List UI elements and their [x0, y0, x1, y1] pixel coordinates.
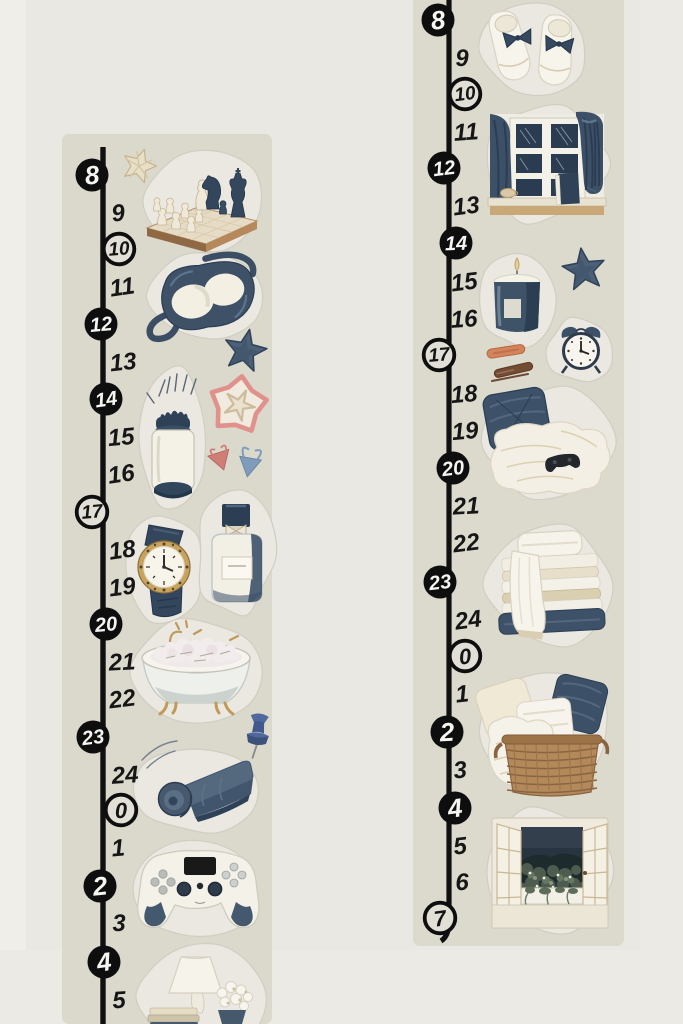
svg-text:17: 17: [81, 501, 105, 524]
svg-text:23: 23: [80, 726, 106, 751]
svg-text:3: 3: [112, 910, 127, 937]
svg-text:21: 21: [107, 648, 136, 676]
svg-text:21: 21: [451, 492, 480, 520]
svg-text:5: 5: [112, 987, 127, 1015]
svg-text:16: 16: [106, 459, 137, 490]
svg-text:6: 6: [455, 869, 470, 896]
svg-text:15: 15: [107, 423, 137, 452]
svg-text:14: 14: [94, 388, 119, 413]
svg-text:12: 12: [89, 313, 113, 337]
svg-text:2: 2: [438, 717, 456, 748]
svg-text:20: 20: [440, 457, 466, 482]
svg-text:11: 11: [453, 118, 480, 147]
svg-text:23: 23: [427, 571, 453, 596]
svg-text:19: 19: [451, 417, 481, 446]
svg-text:18: 18: [107, 535, 138, 566]
svg-text:24: 24: [110, 761, 140, 790]
svg-text:19: 19: [107, 572, 137, 602]
svg-text:9: 9: [455, 45, 470, 72]
svg-text:11: 11: [108, 272, 136, 302]
svg-text:20: 20: [93, 613, 118, 637]
svg-text:22: 22: [106, 684, 137, 714]
svg-text:17: 17: [428, 344, 452, 367]
svg-text:12: 12: [432, 157, 457, 182]
svg-text:1: 1: [454, 680, 470, 708]
svg-text:16: 16: [450, 305, 479, 334]
svg-text:18: 18: [450, 380, 480, 409]
svg-text:13: 13: [451, 191, 481, 221]
svg-text:0: 0: [114, 798, 128, 823]
svg-text:10: 10: [453, 83, 477, 106]
svg-text:10: 10: [108, 238, 131, 260]
svg-text:22: 22: [450, 528, 481, 558]
svg-text:13: 13: [108, 348, 138, 378]
svg-text:15: 15: [449, 267, 479, 297]
svg-text:24: 24: [452, 605, 483, 636]
svg-text:14: 14: [445, 233, 468, 256]
svg-text:1: 1: [110, 834, 126, 862]
